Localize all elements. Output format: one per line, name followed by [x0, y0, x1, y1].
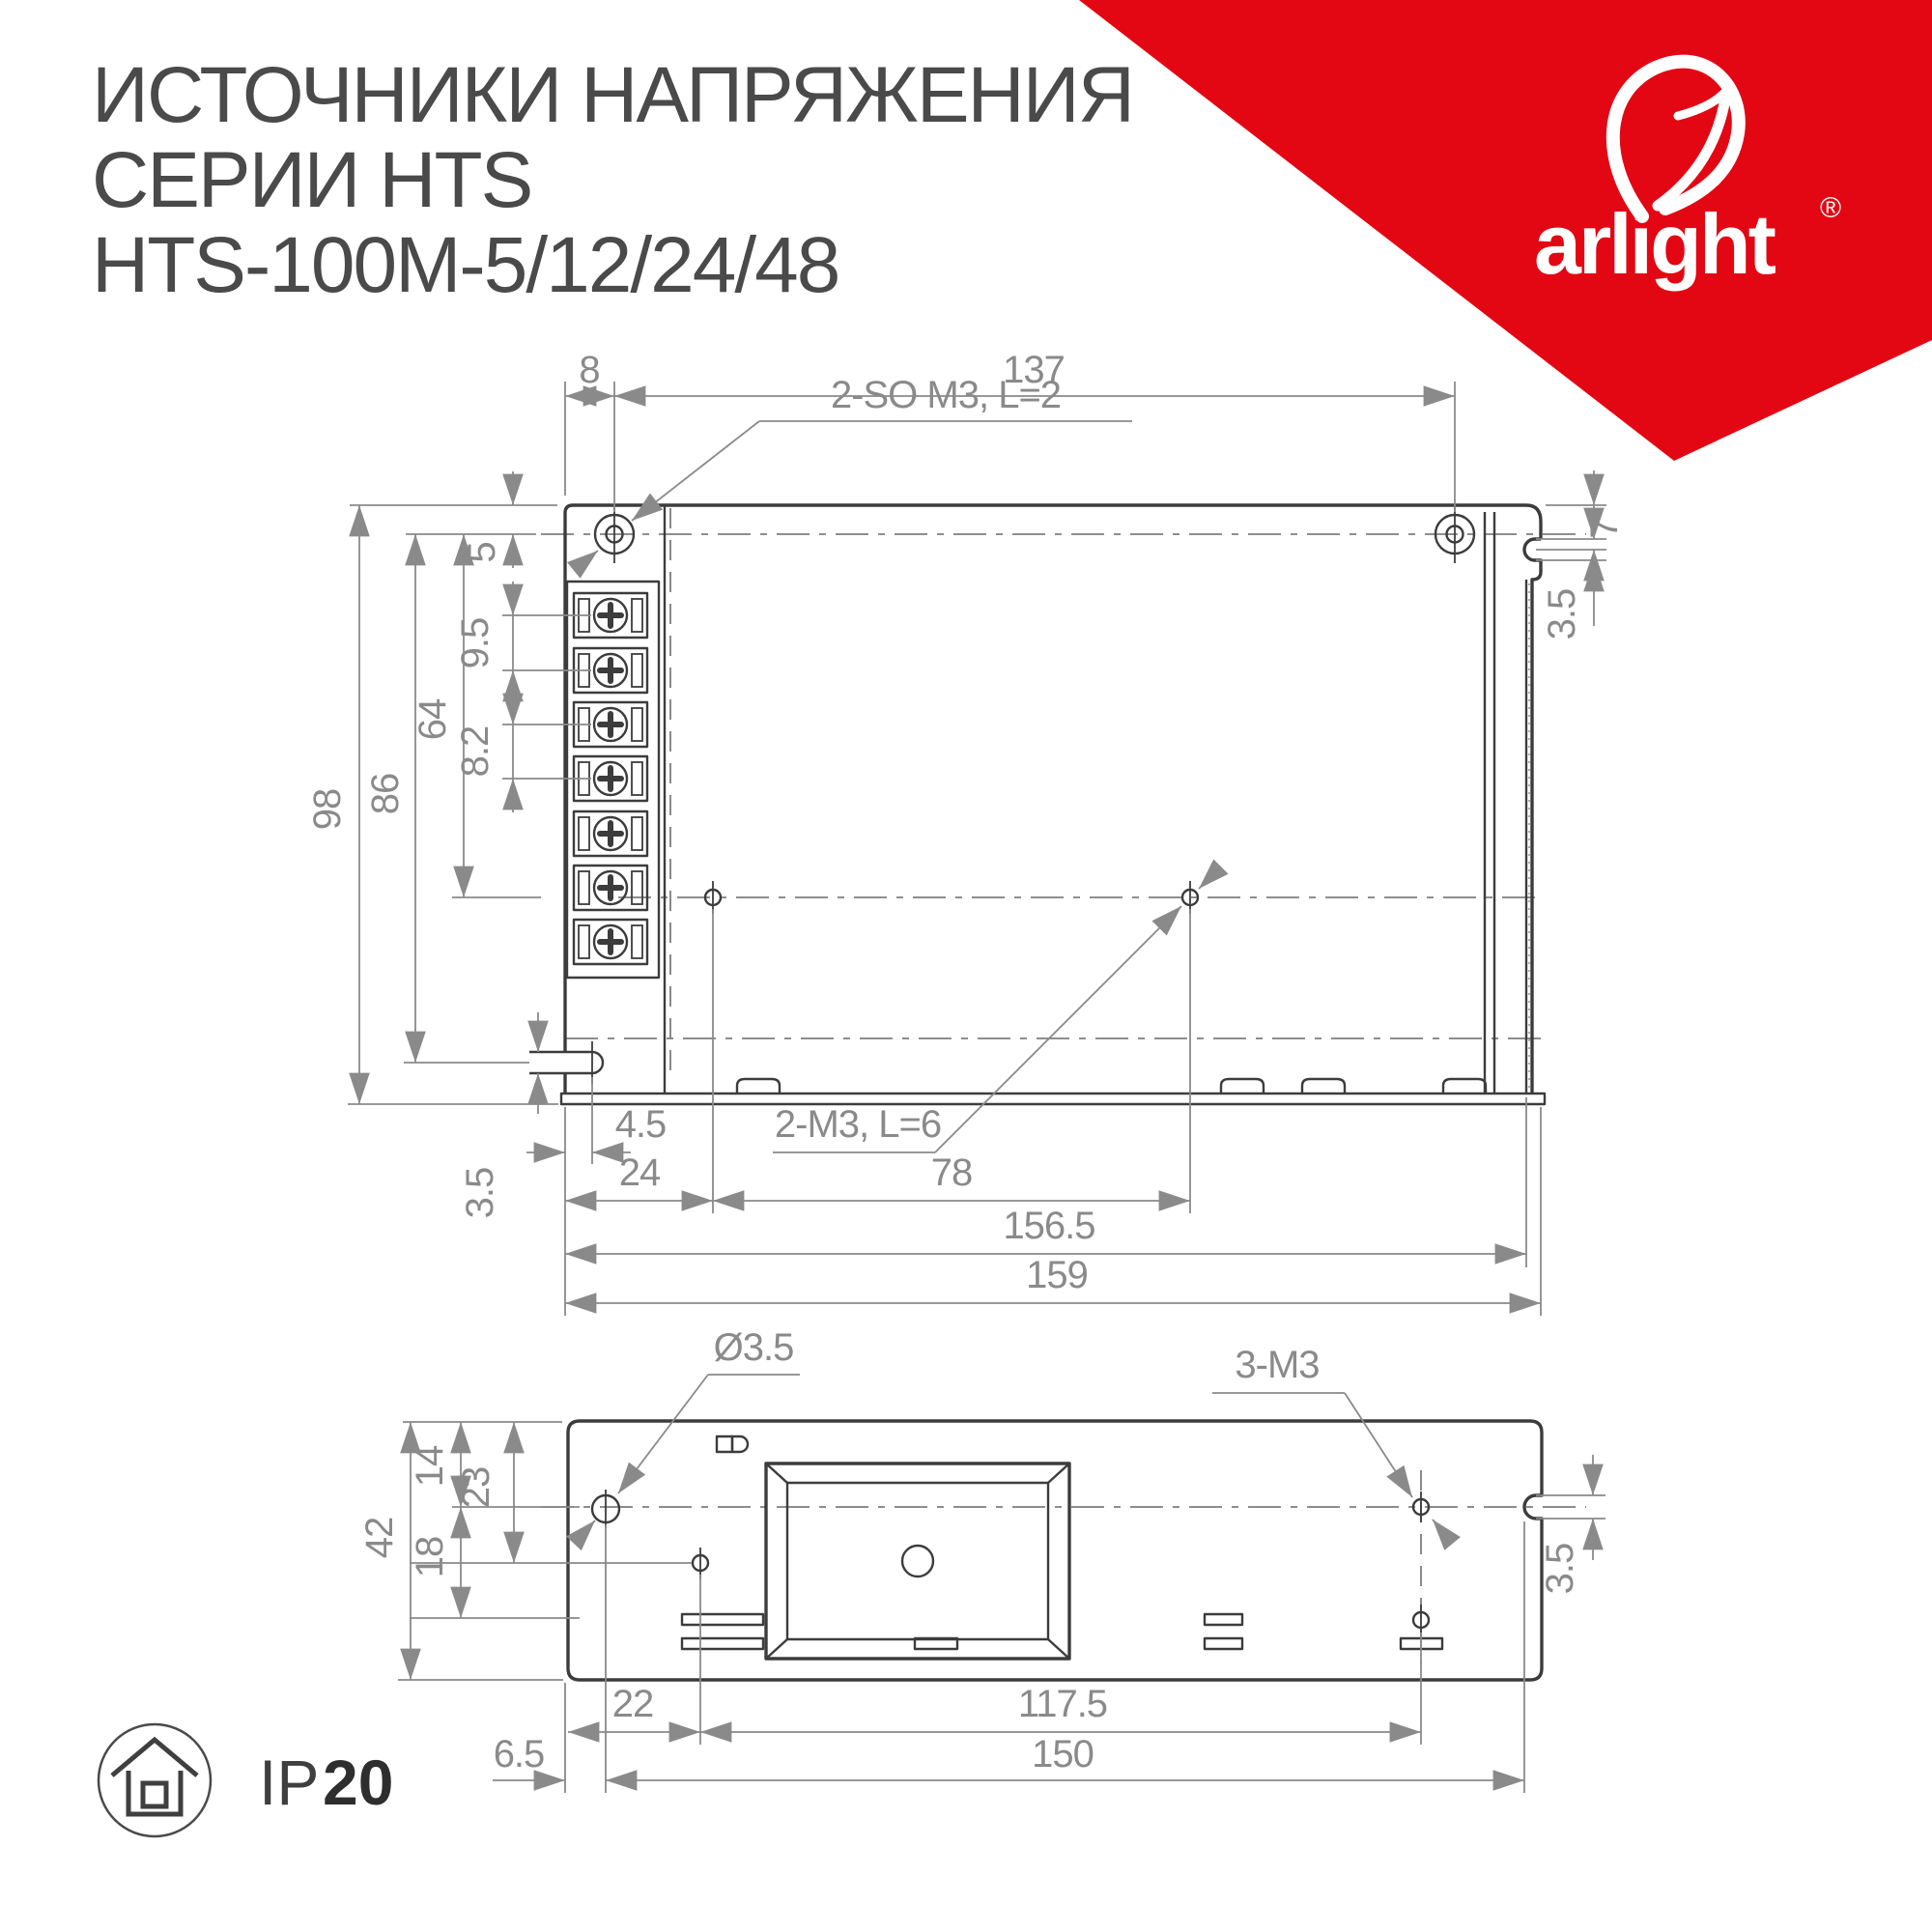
dim-64: 64 [412, 698, 454, 740]
dim-6-5: 6.5 [494, 1733, 545, 1776]
top-view: 8 137 2-SO M3, L=2 98 86 64 5 [306, 349, 1626, 1316]
d-shaped-hole [717, 1436, 748, 1452]
dim-86: 86 [364, 774, 407, 815]
ip-rating: 20 [323, 1747, 393, 1818]
dim-159: 159 [1026, 1254, 1088, 1296]
dim-117-5: 117.5 [1018, 1683, 1107, 1725]
hole-diameter-3-5 [592, 1490, 619, 1528]
label-top-screws: 2-SO M3, L=2 [831, 374, 1061, 416]
dim-9-5: 9.5 [454, 618, 497, 669]
bottom-case-outline [568, 1421, 1542, 1680]
dim-14: 14 [409, 1445, 451, 1487]
dim-22: 22 [612, 1683, 654, 1725]
dim-8: 8 [579, 349, 599, 391]
dim-150: 150 [1032, 1733, 1094, 1776]
dim-23: 23 [455, 1467, 497, 1509]
technical-drawing: arlight ® [0, 0, 1932, 1932]
dim-4-5: 4.5 [615, 1103, 667, 1146]
hole-right-bottom [1413, 1605, 1429, 1635]
fan-window [766, 1463, 1069, 1659]
label-screws: 3-M3 [1235, 1344, 1319, 1386]
registered-mark: ® [1820, 192, 1841, 224]
dim-42: 42 [358, 1518, 401, 1559]
ip-label: IP [259, 1747, 319, 1818]
dim-98: 98 [306, 789, 349, 831]
house-icon [112, 1740, 197, 1814]
dim-156-5: 156.5 [1003, 1205, 1094, 1247]
vent-slots [682, 1614, 1442, 1649]
terminal-6 [574, 866, 647, 910]
dim-24: 24 [619, 1151, 661, 1194]
top-view-dimensions: 8 137 2-SO M3, L=2 98 86 64 5 [306, 349, 1626, 1316]
dim-18: 18 [409, 1537, 451, 1578]
mounting-feet [737, 1079, 1486, 1094]
case-outline [529, 505, 1545, 1104]
brand-corner: arlight ® [1079, 0, 1932, 461]
dim-3-5-right: 3.5 [1541, 589, 1583, 640]
bottom-view: 42 14 23 18 Ø3.5 3-M3 3 [358, 1326, 1605, 1793]
ip-badge: IP 20 [99, 1724, 393, 1836]
dim-5: 5 [461, 542, 503, 562]
terminal-7 [574, 920, 647, 964]
dim-8-2: 8.2 [454, 726, 497, 778]
terminal-5 [574, 811, 647, 856]
label-hole: Ø3.5 [714, 1326, 794, 1369]
terminal-block [567, 582, 659, 978]
fan-center-hole [902, 1546, 933, 1577]
red-triangle [1079, 0, 1932, 461]
dim-3-5: 3.5 [1539, 1544, 1581, 1595]
dim-3-5-bottom: 3.5 [459, 1168, 501, 1219]
dim-78: 78 [931, 1151, 973, 1194]
hole-small-left [693, 1548, 708, 1578]
dim-7: 7 [1583, 518, 1626, 538]
page: ИСТОЧНИКИ НАПРЯЖЕНИЯ СЕРИИ HTS HTS-100M-… [0, 0, 1932, 1932]
label-mid-screws: 2-M3, L=6 [775, 1103, 941, 1146]
bottom-view-dimensions: 42 14 23 18 Ø3.5 3-M3 3 [358, 1326, 1605, 1793]
brand-name: arlight [1534, 196, 1776, 292]
